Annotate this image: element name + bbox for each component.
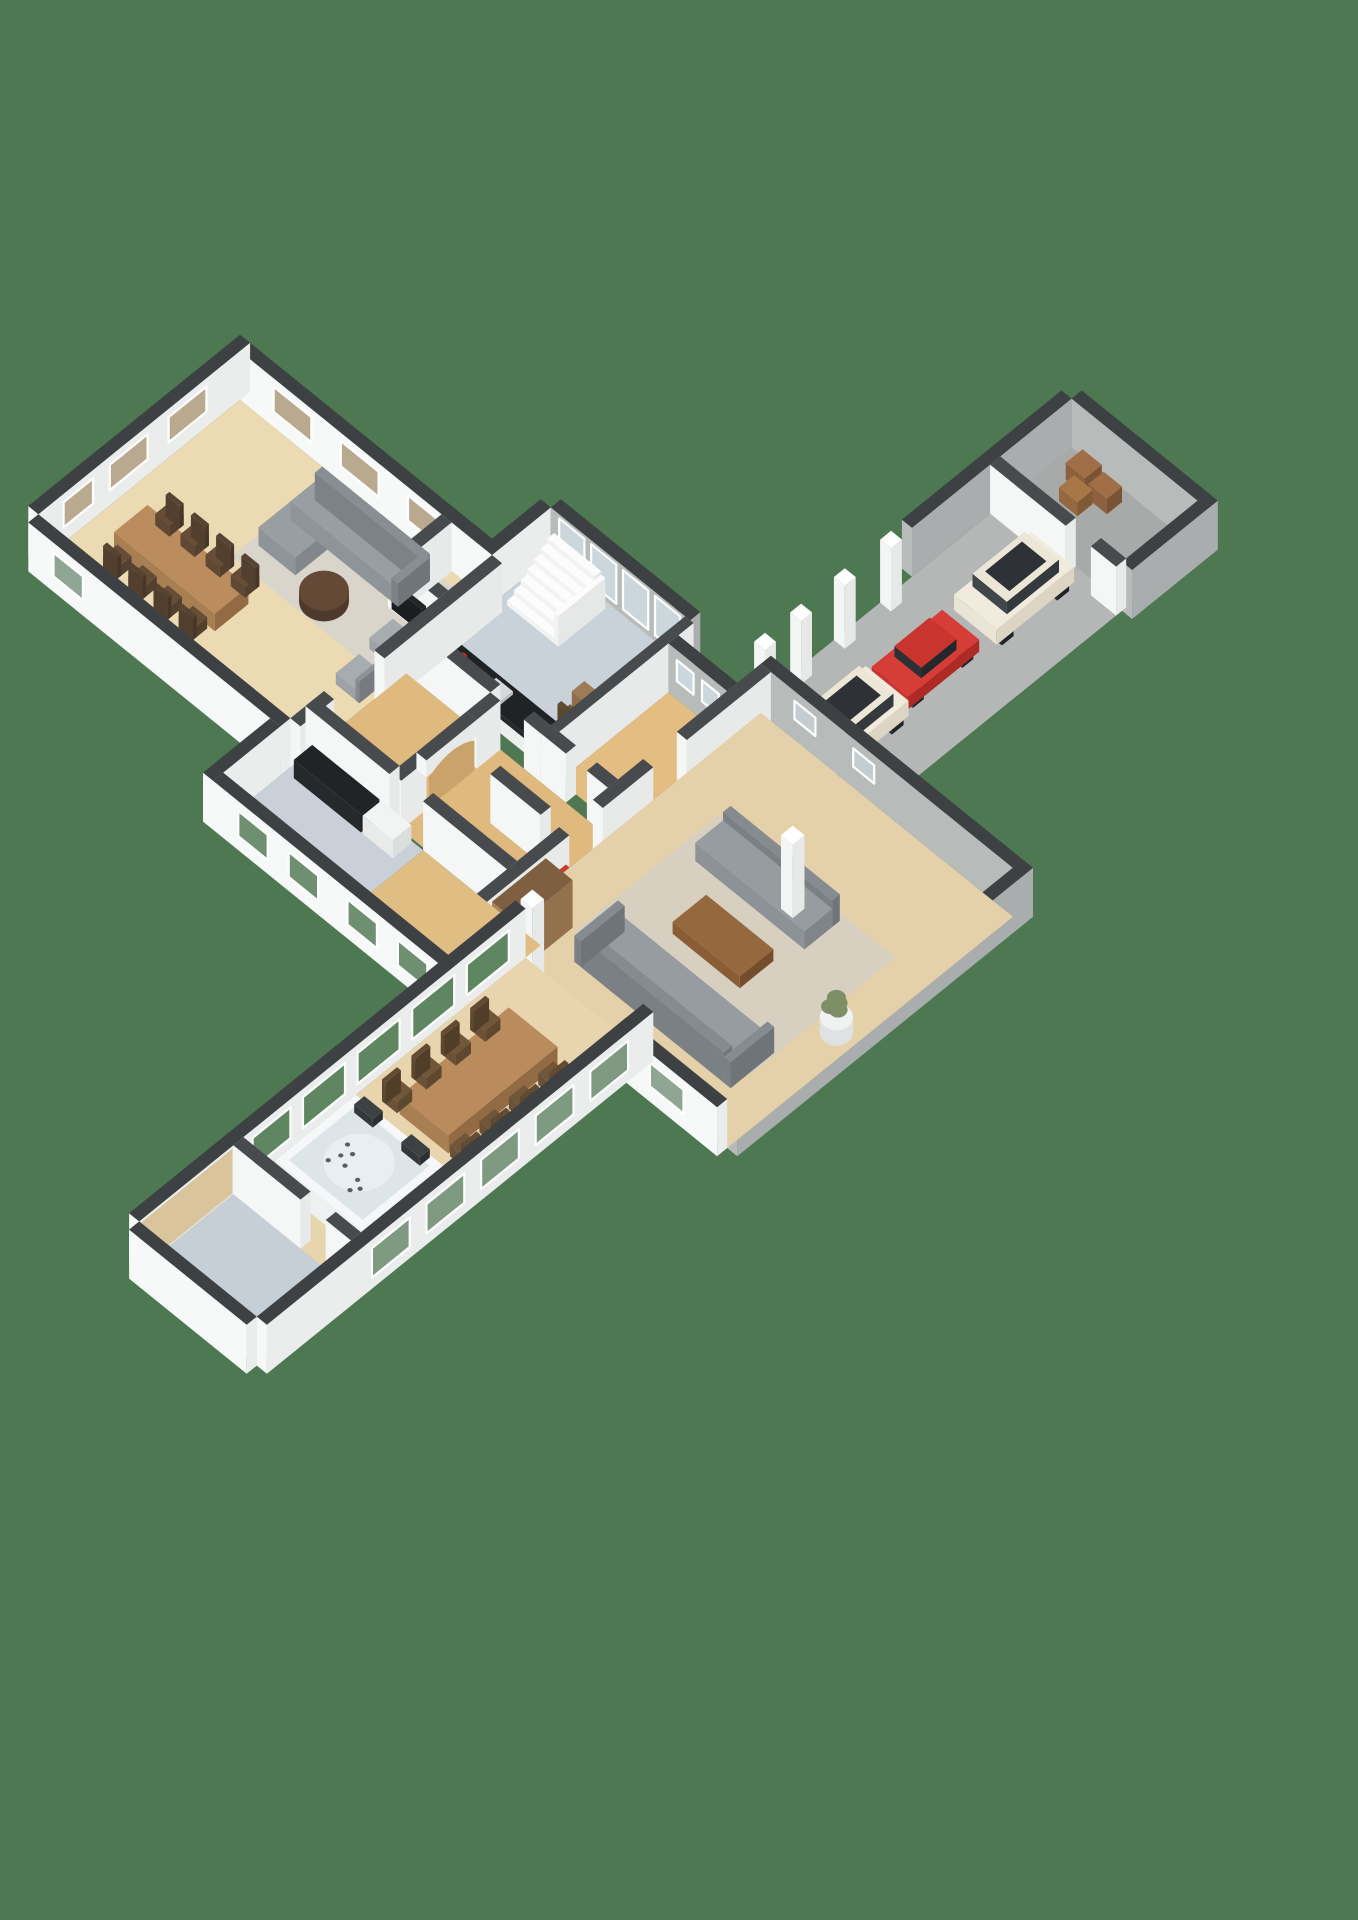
- jacuzzi-water-ellipse: [324, 1134, 395, 1192]
- carport-pillar-2: [834, 568, 856, 649]
- dining-chair-back-se: [193, 615, 197, 640]
- jacuzzi-jets-a-dot: [338, 1153, 343, 1157]
- jacuzzi-jets-b-dot: [347, 1188, 352, 1192]
- dining-chair-back-se: [256, 565, 260, 590]
- wall-wing-south-face-se: [247, 1317, 257, 1374]
- sofa-arm-east-face-sw: [724, 1057, 731, 1088]
- wing-chair-back-sw: [470, 1008, 474, 1033]
- dining-chair-back-se: [143, 575, 147, 600]
- armchair-2-back-sw: [356, 679, 360, 704]
- jacuzzi-jets-a-dot: [345, 1142, 350, 1146]
- carport-pillar-2-face-se: [845, 577, 856, 649]
- jacuzzi-jets-b-dot: [358, 1187, 363, 1191]
- wing-chair-back-sw: [441, 1032, 445, 1057]
- carport-pillar-3-face-se: [801, 612, 812, 684]
- wing-chair-back-sw: [382, 1079, 386, 1104]
- wall-living-south-b-face-se: [717, 1099, 727, 1156]
- sofa-arm-west-face-sw: [574, 936, 581, 967]
- carport-pillar-1-face-se: [891, 540, 902, 612]
- wall-wing-southeast-face-sw: [257, 1317, 267, 1374]
- wall-wing-divider-a-face-se: [301, 1192, 311, 1249]
- carport-pillar-1: [880, 531, 902, 612]
- carport-pillar-2-face-sw: [834, 577, 845, 649]
- wall-bedroom-south-a-face-se: [566, 745, 576, 802]
- floorplan-3d: [0, 0, 1358, 1920]
- carport-wall-west-face-sw: [902, 520, 912, 577]
- pillar-living-ne: [781, 826, 805, 919]
- stair-rail-face-sw: [554, 613, 558, 647]
- dining-chair-back-se: [180, 503, 184, 528]
- wall-lounge-south-face-se: [280, 718, 290, 775]
- pillar-living-ne-face-sw: [781, 835, 793, 918]
- carport-pillar-1-face-sw: [880, 540, 891, 612]
- carport-pillar-3: [790, 604, 812, 685]
- plant-foliage-dot: [821, 999, 840, 1014]
- jacuzzi-jets-b-dot: [355, 1178, 360, 1182]
- dining-chair-back-se: [168, 595, 172, 620]
- jacuzzi-jets-a-dot: [350, 1152, 355, 1156]
- wing-chair-back-sw: [411, 1056, 415, 1081]
- dining-chair-back-se: [230, 544, 234, 569]
- jacuzzi-water: [324, 1134, 395, 1192]
- wall-neck-west-face-sw: [203, 773, 213, 830]
- pillar-living-ne-face-se: [793, 835, 805, 918]
- storage-wall-south-b-face-se: [1116, 558, 1126, 615]
- jacuzzi-jets-a-dot: [326, 1158, 331, 1162]
- floorplan-stage: [0, 0, 1358, 1920]
- dining-chair-back-se: [117, 554, 121, 579]
- coffee-table-round: [299, 571, 349, 622]
- dining-chair-back-se: [205, 524, 209, 549]
- coffee-table-round-top: [299, 571, 349, 611]
- jacuzzi-jets-a-dot: [342, 1164, 347, 1168]
